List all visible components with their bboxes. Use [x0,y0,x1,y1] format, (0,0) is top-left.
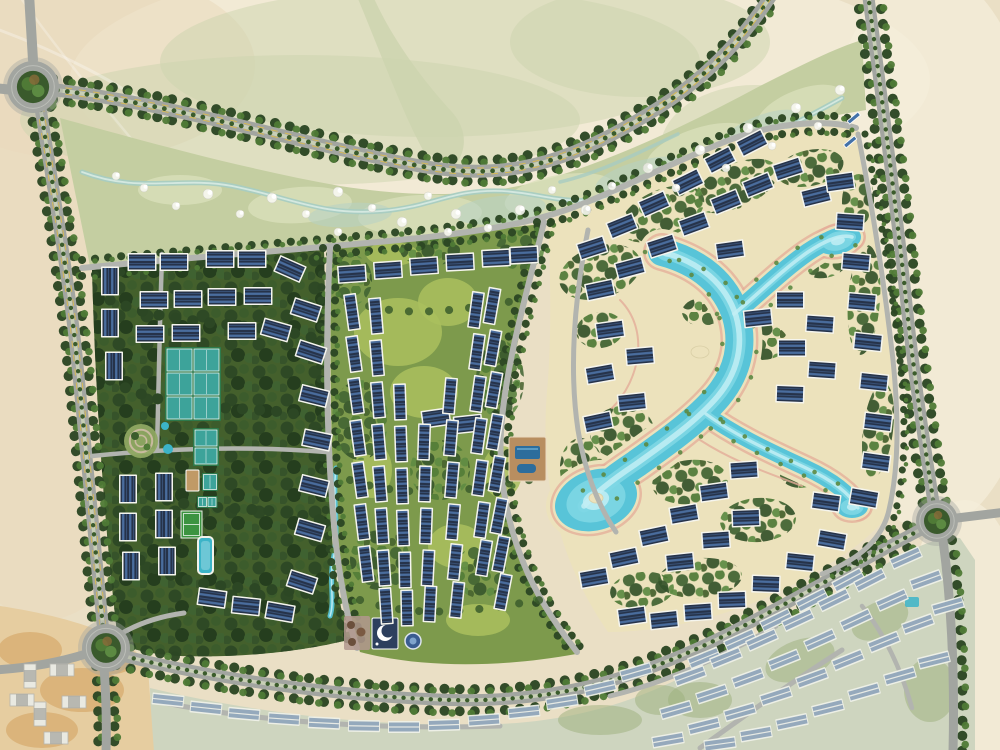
roundabout-southwest [78,620,134,676]
roundabout-northwest [3,57,63,117]
road-stub-north [29,0,33,60]
lap-pool [198,537,213,574]
masterplan-map [0,0,1000,750]
football-pitch [181,511,202,538]
tennis-courts [165,347,221,421]
paddle-courts [193,428,219,466]
scene-root [0,0,1000,750]
masterplan-stage [0,0,1000,750]
road-stub-sw-south [96,666,117,750]
mini-court [202,473,218,491]
mini-courts-2 [197,496,218,508]
lagoon-clubhouse-pool [509,437,546,481]
sports-clubhouse [186,470,199,491]
roundabout-east [912,496,962,546]
dome-pavilion-top [410,638,417,645]
road-stub-east [957,512,1000,518]
